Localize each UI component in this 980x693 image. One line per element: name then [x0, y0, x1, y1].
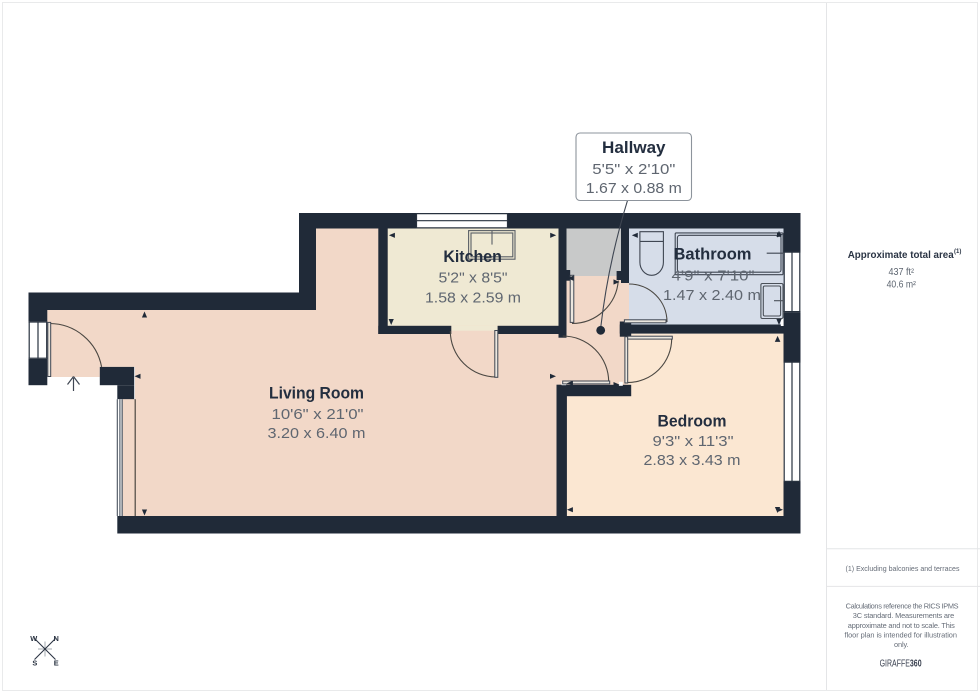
svg-text:E: E: [54, 659, 59, 668]
svg-text:W: W: [30, 634, 37, 643]
svg-text:1.67 x 0.88 m: 1.67 x 0.88 m: [586, 181, 682, 197]
svg-text:4'9" x 7'10": 4'9" x 7'10": [672, 268, 755, 284]
svg-text:Hallway: Hallway: [602, 139, 666, 157]
svg-text:approximate and not to scale.: approximate and not to scale. This: [848, 621, 955, 630]
svg-text:1.58 x 2.59 m: 1.58 x 2.59 m: [425, 291, 521, 307]
svg-text:2.83 x 3.43 m: 2.83 x 3.43 m: [644, 453, 741, 469]
svg-text:Bathroom: Bathroom: [674, 246, 752, 264]
svg-text:3C standard. Measurements are: 3C standard. Measurements are: [853, 611, 955, 620]
svg-text:N: N: [54, 634, 59, 643]
svg-text:437 ft²: 437 ft²: [889, 267, 915, 278]
svg-text:S: S: [32, 659, 37, 668]
svg-text:Kitchen: Kitchen: [443, 248, 502, 266]
svg-text:(1): (1): [954, 249, 961, 255]
svg-text:10'6" x 21'0": 10'6" x 21'0": [272, 407, 364, 423]
svg-text:5'5" x 2'10": 5'5" x 2'10": [592, 162, 675, 178]
svg-text:(1) Excluding balconies and te: (1) Excluding balconies and terraces: [846, 564, 960, 573]
svg-text:Bedroom: Bedroom: [658, 413, 727, 431]
svg-text:9'3" x 11'3": 9'3" x 11'3": [653, 434, 734, 450]
svg-text:Approximate total area: Approximate total area: [848, 250, 955, 261]
svg-text:Calculations reference the RIC: Calculations reference the RICS IPMS: [846, 601, 959, 610]
svg-text:only.: only.: [894, 640, 909, 649]
svg-text:floor plan is intended for ill: floor plan is intended for illustration: [845, 631, 958, 640]
svg-text:GIRAFFE360: GIRAFFE360: [880, 658, 922, 670]
svg-text:40.6 m²: 40.6 m²: [887, 280, 917, 291]
svg-text:1.47 x 2.40 m: 1.47 x 2.40 m: [663, 288, 761, 304]
svg-text:Living Room: Living Room: [269, 385, 364, 403]
svg-text:5'2" x 8'5": 5'2" x 8'5": [439, 270, 508, 286]
svg-text:3.20 x 6.40 m: 3.20 x 6.40 m: [268, 426, 366, 442]
